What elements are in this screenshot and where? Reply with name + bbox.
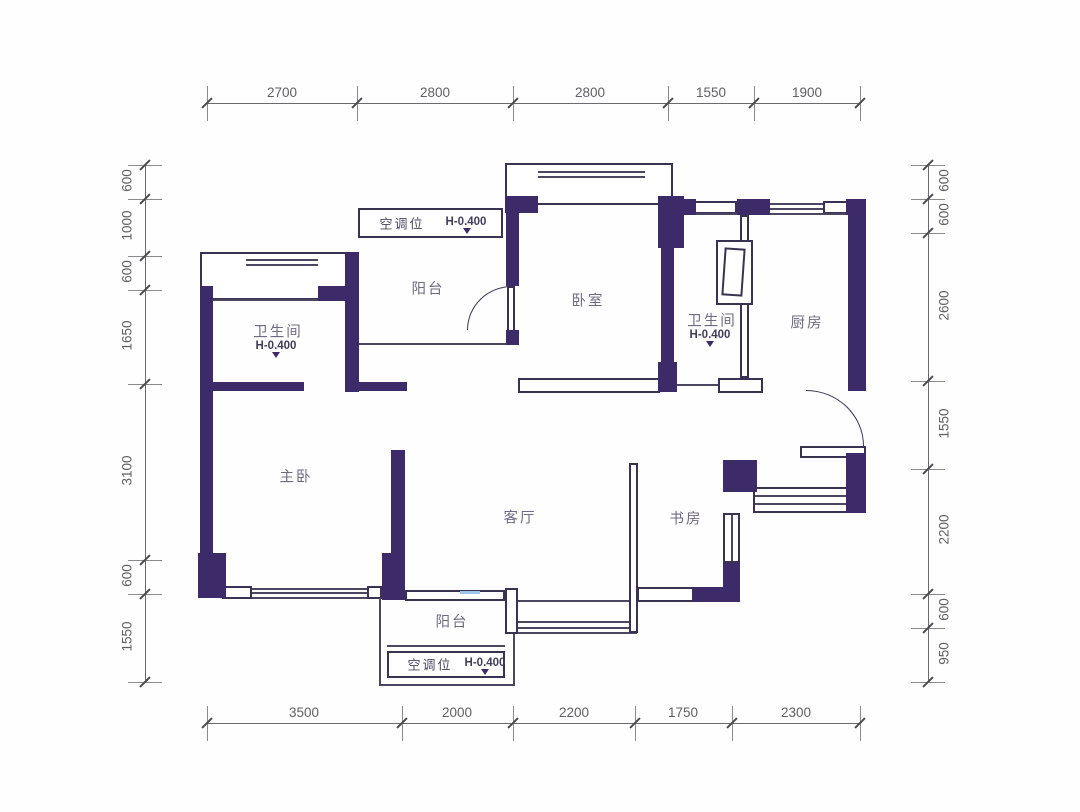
window-glazing-line [517, 627, 637, 629]
window-glazing-line [755, 503, 846, 505]
bedroom-door-leaf [507, 286, 515, 332]
room-label-kitchen: 厨房 [791, 312, 824, 333]
wall-left-exterior [200, 286, 213, 558]
dim-right-4: 1550 [937, 394, 952, 454]
wall-master-east-block [382, 553, 405, 600]
dim-top-1: 2700 [252, 85, 312, 100]
window-glazing-line [538, 171, 645, 173]
ac-bottom-level: H-0.400 [465, 657, 506, 669]
dim-right-2: 600 [937, 185, 952, 245]
wall-balcony-left [345, 252, 359, 392]
dim-right-3: 2600 [937, 276, 952, 336]
dim-bottom-2: 2000 [427, 705, 487, 720]
wall-partition-top-block [737, 199, 770, 215]
room-label-bath-right: 卫生间 [687, 310, 737, 331]
dim-top-3: 2800 [560, 85, 620, 100]
wall-bath-left-south [212, 382, 304, 391]
bath-left-level: H-0.400 [256, 340, 297, 352]
dim-line-left [145, 165, 146, 682]
dim-left-7: 1550 [120, 607, 135, 667]
dim-left-5: 3100 [120, 441, 135, 501]
wall-north-segment [674, 199, 696, 215]
balcony-inner-line [387, 645, 505, 647]
dim-left-4: 1650 [120, 306, 135, 366]
kitchen-door-arc [806, 390, 864, 446]
room-label-bath-left: 卫生间 [253, 321, 303, 342]
bedroom-south-wall-band [518, 378, 660, 393]
level-arrow-icon [272, 352, 280, 358]
bath-right-level: H-0.400 [690, 329, 731, 341]
room-label-balcony-bottom: 阳台 [436, 611, 469, 632]
dim-top-5: 1900 [777, 85, 837, 100]
dim-bottom-1: 3500 [274, 705, 334, 720]
window-glazing-line [252, 588, 367, 590]
window-glazing-line [517, 632, 637, 634]
wall-study-bay-nw-block [723, 460, 757, 492]
living-south-line [517, 600, 631, 602]
balcony-top-south-line [358, 343, 507, 345]
balcony-sliding-door [405, 590, 505, 601]
sliding-door-glass [460, 591, 480, 594]
dim-right-7: 950 [937, 624, 952, 684]
ac-top-label: 空调位 [379, 214, 424, 233]
room-label-living-room: 客厅 [504, 507, 537, 528]
partition-south-box [718, 378, 763, 393]
wall-study-bay-east-column [846, 453, 866, 513]
master-window-end-box [222, 586, 252, 599]
wall-bath-left-south-right [345, 382, 407, 391]
balcony-bottom-east-line [513, 633, 515, 686]
balcony-east-post [505, 588, 518, 634]
dim-line-top [207, 103, 860, 104]
dim-bottom-3: 2200 [544, 705, 604, 720]
level-arrow-icon [706, 341, 714, 347]
wall-bedroom-west-stub [506, 330, 519, 345]
window-glazing-line [252, 597, 367, 599]
wall-bedroom-west [506, 205, 519, 286]
wall-study-south [693, 587, 737, 602]
wall-bedroom-east-block [658, 362, 677, 392]
study-south-window [637, 587, 694, 602]
window-glazing-line [246, 259, 318, 261]
study-bay-window-h [753, 487, 848, 513]
dim-top-2: 2800 [405, 85, 465, 100]
window-glazing-line [246, 264, 318, 266]
window-glazing-line [517, 621, 637, 623]
room-label-balcony-top: 阳台 [412, 278, 445, 299]
balcony-bottom-west-line [379, 598, 381, 686]
wall-bedroom-east [661, 246, 674, 364]
room-label-master-bedroom: 主卧 [280, 466, 313, 487]
wall-left-bottom-corner [198, 553, 226, 598]
dim-line-bottom [207, 723, 860, 724]
ac-bottom-label: 空调位 [407, 655, 452, 674]
window-glazing-line [252, 592, 367, 594]
room-label-study: 书房 [670, 508, 703, 529]
wall-right-exterior [848, 199, 866, 391]
bath-right-window-sash [721, 247, 745, 296]
window-glazing-line [538, 176, 645, 178]
dim-bottom-4: 1750 [653, 705, 713, 720]
entry-wall-line [677, 384, 718, 386]
living-study-divider [629, 463, 638, 633]
dim-left-6: 600 [120, 546, 135, 606]
ac-top-level: H-0.400 [446, 216, 487, 228]
dim-bottom-5: 2300 [766, 705, 826, 720]
dim-line-right [928, 165, 929, 682]
wall-master-east [391, 450, 405, 558]
level-arrow-icon [463, 228, 471, 234]
balcony-bottom-south-line [379, 684, 515, 686]
dim-top-4: 1550 [681, 85, 741, 100]
dim-right-5: 2200 [937, 500, 952, 560]
window-glazing-line [731, 515, 733, 561]
window-glazing-line [770, 208, 823, 210]
level-arrow-icon [481, 669, 489, 675]
window-glazing-line [755, 495, 846, 497]
floor-plan-canvas: 2700 2800 2800 1550 1900 3500 2000 2200 … [0, 0, 1080, 812]
bedroom-door-arc [467, 286, 512, 330]
room-label-bedroom: 卧室 [572, 290, 605, 311]
window-glazing-line [770, 203, 823, 205]
dim-left-3: 600 [120, 242, 135, 302]
